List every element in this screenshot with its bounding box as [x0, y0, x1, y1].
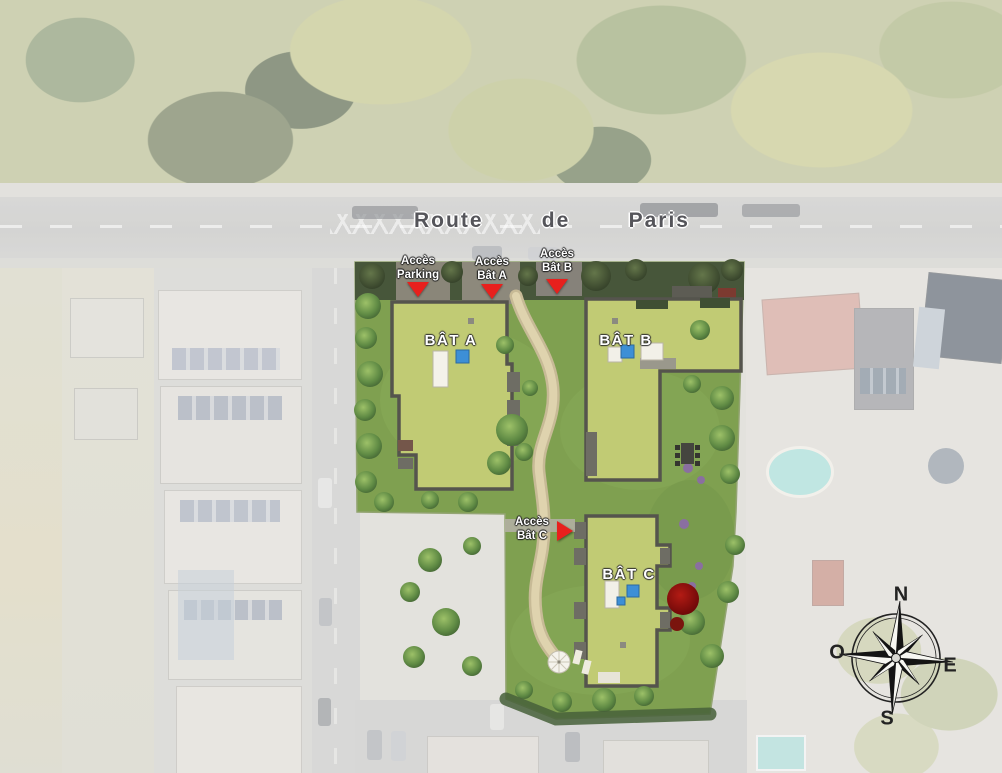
access-bat-c-marker-icon [557, 521, 573, 541]
road-word: de [542, 209, 571, 233]
access-bat-a-marker-icon [481, 284, 503, 299]
site-plan-screenshot: Route de Paris Accès Parking Accès Bât A… [0, 0, 1002, 773]
compass-south-label: S [880, 708, 893, 731]
building-bat-b-label: BÂT B [576, 332, 676, 349]
compass-west-label: O [829, 642, 845, 665]
access-label-line: Bât A [457, 270, 527, 284]
access-parking-marker-icon [407, 282, 429, 297]
access-label-line: Accès [457, 256, 527, 270]
access-label-line: Bât B [522, 262, 592, 276]
access-bat-c-label: Accès Bât C [506, 516, 558, 543]
building-bat-a-label: BÂT A [401, 332, 501, 349]
building-bat-c [586, 516, 670, 686]
access-label-line: Accès [383, 255, 453, 269]
road-word: Route [414, 209, 484, 233]
compass-rose [835, 597, 957, 719]
building-bat-c-label: BÂT C [579, 566, 679, 583]
compass-north-label: N [894, 584, 908, 607]
access-bat-b-marker-icon [546, 279, 568, 294]
access-label-line: Accès [506, 516, 558, 530]
development-parcel-plan [0, 0, 1002, 773]
access-label-line: Accès [522, 248, 592, 262]
access-bat-b-label: Accès Bât B [522, 248, 592, 275]
compass-east-label: E [943, 655, 956, 678]
access-label-line: Bât C [506, 530, 558, 544]
access-label-line: Parking [383, 269, 453, 283]
access-parking-label: Accès Parking [383, 255, 453, 282]
road-word: Paris [629, 209, 690, 233]
road-name-label: Route de Paris [414, 209, 690, 233]
access-bat-a-label: Accès Bât A [457, 256, 527, 283]
